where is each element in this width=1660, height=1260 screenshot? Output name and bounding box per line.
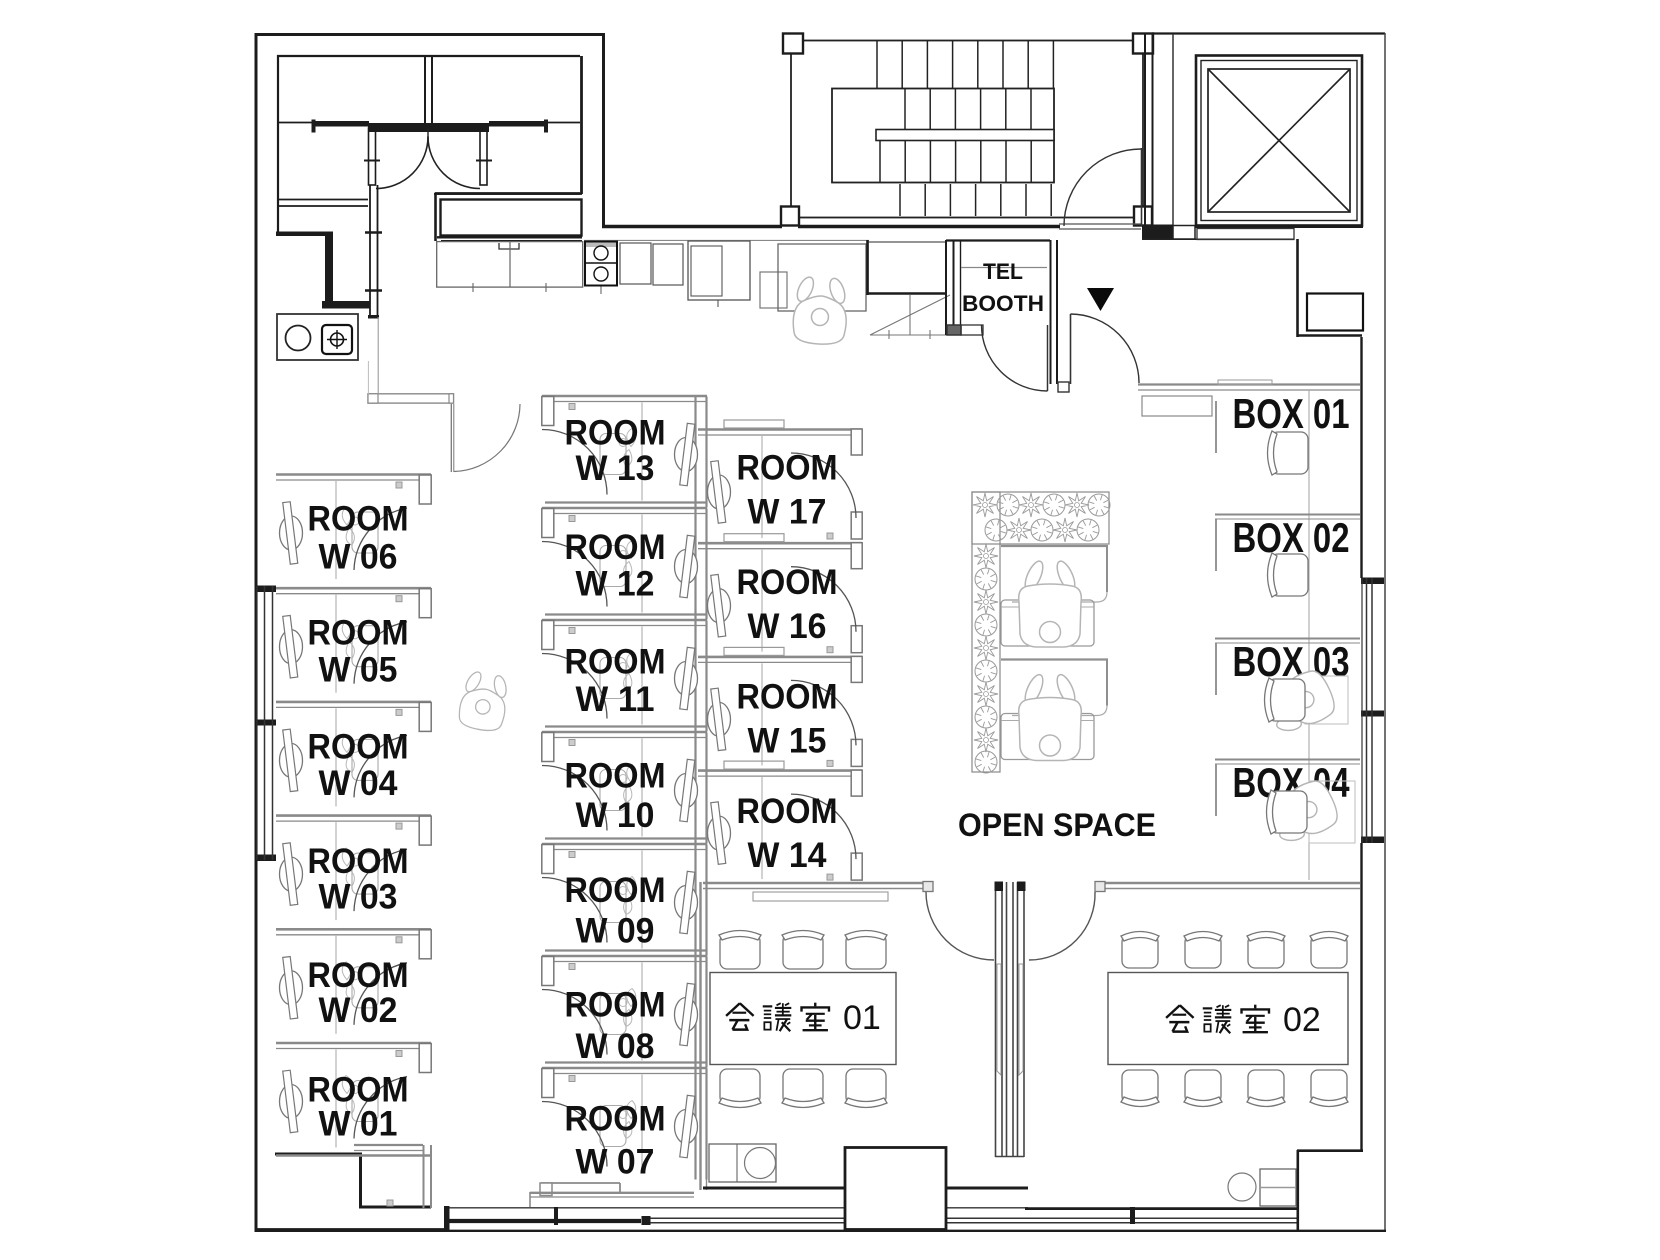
svg-text:ROOM: ROOM xyxy=(737,678,838,717)
svg-text:ROOM: ROOM xyxy=(737,792,838,831)
svg-text:W 17: W 17 xyxy=(748,493,827,532)
svg-text:W 13: W 13 xyxy=(576,449,655,488)
svg-text:W 03: W 03 xyxy=(319,878,398,917)
svg-text:W 04: W 04 xyxy=(319,764,399,803)
svg-text:ROOM: ROOM xyxy=(565,414,666,453)
svg-text:TEL: TEL xyxy=(983,259,1023,284)
svg-text:BOX 03: BOX 03 xyxy=(1233,638,1350,685)
svg-text:ROOM: ROOM xyxy=(308,842,409,881)
svg-text:ROOM: ROOM xyxy=(565,528,666,567)
svg-text:W 10: W 10 xyxy=(576,796,655,835)
svg-text:ROOM: ROOM xyxy=(565,642,666,681)
svg-text:W 11: W 11 xyxy=(576,680,655,719)
svg-text:ROOM: ROOM xyxy=(565,757,666,796)
svg-text:W 09: W 09 xyxy=(576,911,655,950)
svg-text:W 14: W 14 xyxy=(748,836,828,875)
svg-text:ROOM: ROOM xyxy=(737,563,838,602)
svg-text:ROOM: ROOM xyxy=(308,614,409,653)
svg-text:ROOM: ROOM xyxy=(565,871,666,910)
svg-text:W 05: W 05 xyxy=(319,651,398,690)
svg-text:02: 02 xyxy=(1283,1001,1321,1039)
svg-text:W 06: W 06 xyxy=(319,537,398,576)
svg-text:ROOM: ROOM xyxy=(737,449,838,488)
svg-text:W 12: W 12 xyxy=(576,565,655,604)
svg-text:W 01: W 01 xyxy=(319,1104,398,1143)
svg-text:W 07: W 07 xyxy=(576,1143,655,1182)
svg-text:ROOM: ROOM xyxy=(565,985,666,1024)
svg-text:01: 01 xyxy=(843,999,881,1037)
svg-text:W 15: W 15 xyxy=(748,722,827,761)
svg-text:BOX 01: BOX 01 xyxy=(1233,390,1350,437)
svg-text:ROOM: ROOM xyxy=(308,499,409,538)
svg-text:ROOM: ROOM xyxy=(308,956,409,995)
svg-text:ROOM: ROOM xyxy=(308,728,409,767)
svg-text:BOOTH: BOOTH xyxy=(962,291,1044,316)
svg-text:ROOM: ROOM xyxy=(565,1100,666,1139)
svg-text:W 16: W 16 xyxy=(748,607,827,646)
svg-text:OPEN SPACE: OPEN SPACE xyxy=(958,807,1156,843)
svg-text:W 02: W 02 xyxy=(319,991,398,1030)
svg-text:W 08: W 08 xyxy=(576,1027,655,1066)
